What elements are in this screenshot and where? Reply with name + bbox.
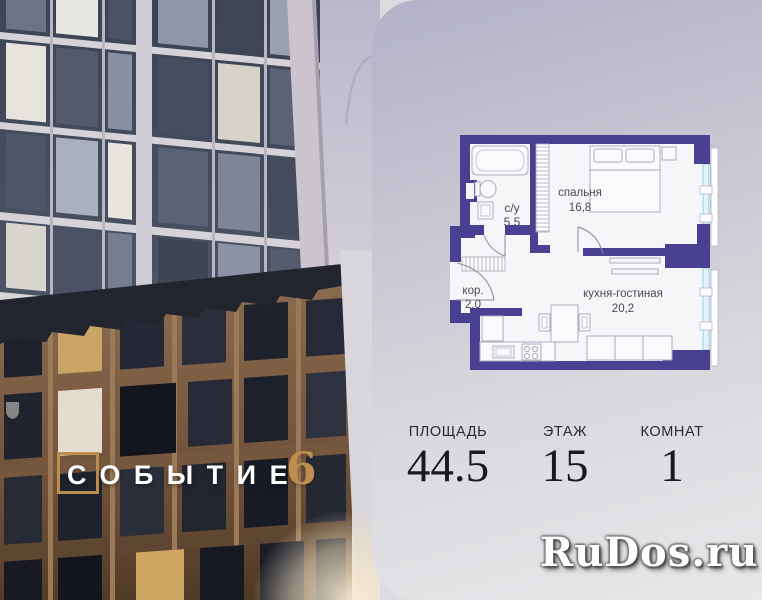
bathtub-icon	[472, 146, 528, 175]
toilet-icon	[475, 181, 496, 198]
room-label-corridor: кор.	[462, 285, 483, 297]
rooms-stat-value: 1	[630, 442, 714, 491]
building-photo: СОБЫТИЕ 6	[0, 0, 380, 600]
shaft-niche	[466, 183, 474, 199]
floor-stat: ЭТАЖ 15	[525, 424, 605, 491]
room-area-bedroom: 16,8	[569, 202, 591, 214]
fridge-icon	[482, 316, 503, 341]
room-label-bathroom: с/у	[504, 201, 519, 215]
rooms-stat-label: КОМНАТ	[630, 424, 714, 440]
wardrobe-icon	[536, 144, 549, 232]
room-area-corridor: 2,0	[465, 299, 481, 311]
area-stat-label: ПЛОЩАДЬ	[378, 424, 518, 440]
info-card: с/у 5,5 спальня 16,8 кор. 2,0 кухня-гост…	[372, 0, 762, 600]
balcony-slab	[711, 270, 718, 366]
kitchen-counter-icon	[480, 342, 555, 361]
coat-rack-icon	[462, 257, 505, 271]
watermark-logo: RuDos.ru	[540, 529, 758, 576]
area-stat: ПЛОЩАДЬ 44.5	[378, 424, 518, 491]
floor-stat-value: 15	[525, 442, 605, 491]
building-name-label: СОБЫТИЕ	[67, 460, 301, 491]
sink-icon	[478, 202, 493, 219]
brand-logo: СОБЫТИЕ 6	[0, 450, 380, 510]
room-area-bathroom: 5,5	[504, 215, 521, 229]
rooms-stat: КОМНАТ 1	[630, 424, 714, 491]
balcony-slab	[711, 148, 718, 246]
floor-stat-label: ЭТАЖ	[525, 424, 605, 440]
room-label-bedroom: спальня	[558, 187, 602, 199]
area-stat-value: 44.5	[378, 442, 518, 491]
sofa-icon	[587, 336, 672, 360]
building-number-label: 6	[286, 444, 317, 495]
floor-plan: с/у 5,5 спальня 16,8 кор. 2,0 кухня-гост…	[445, 130, 735, 380]
room-area-kitchen-living: 20,2	[612, 303, 634, 315]
room-label-kitchen-living: кухня-гостиная	[583, 288, 663, 300]
arch-silhouette	[346, 56, 372, 125]
building-photo-art	[0, 0, 380, 600]
